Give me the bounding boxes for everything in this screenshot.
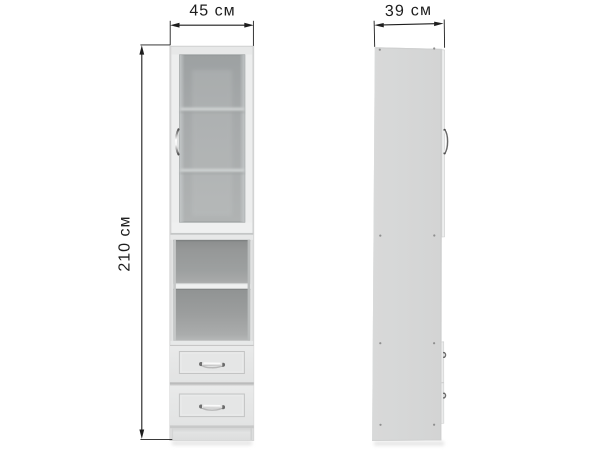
svg-text:45 см: 45 см — [189, 3, 235, 20]
svg-text:39 см: 39 см — [385, 2, 433, 20]
svg-text:210 см: 210 см — [116, 216, 133, 272]
